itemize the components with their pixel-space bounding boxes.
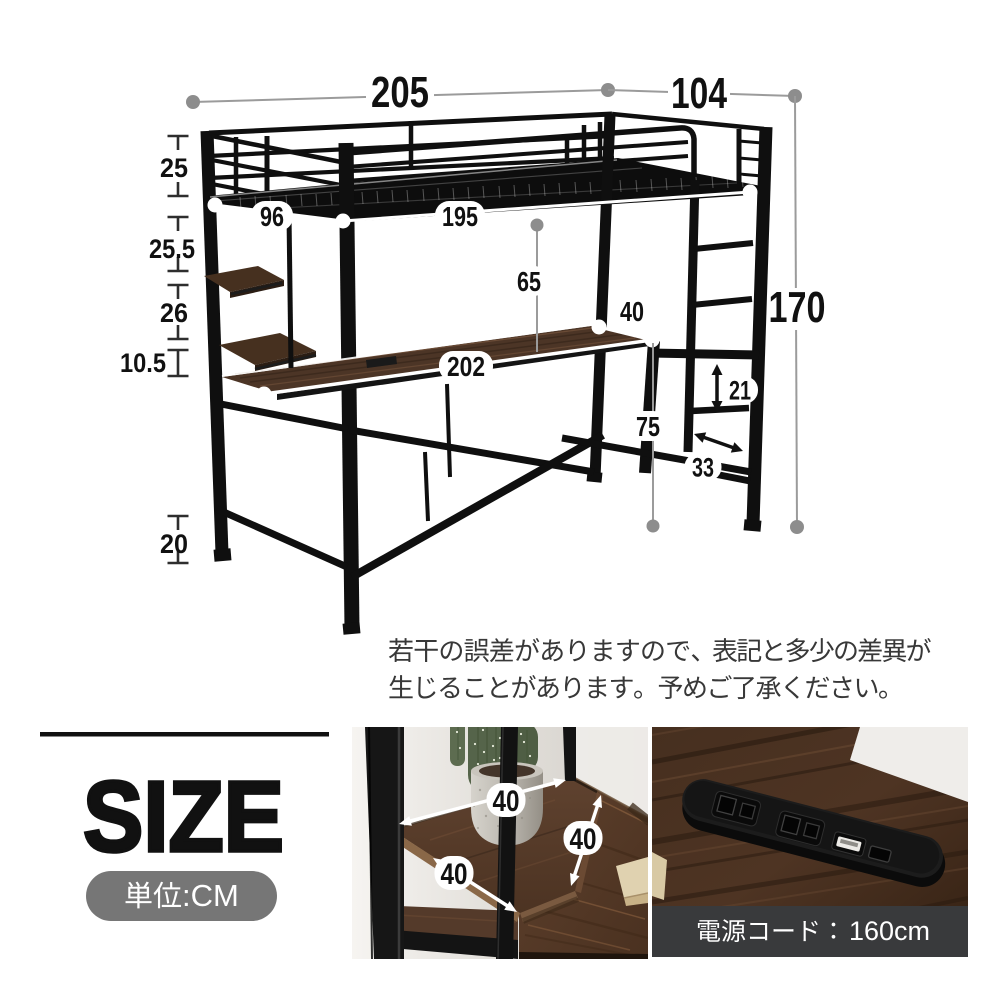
svg-text:21: 21	[729, 376, 751, 406]
svg-text:195: 195	[442, 201, 478, 232]
svg-text:10.5: 10.5	[120, 348, 166, 378]
svg-text:104: 104	[671, 69, 727, 118]
svg-text:40: 40	[441, 858, 468, 891]
svg-text:20: 20	[160, 529, 188, 559]
svg-text:205: 205	[371, 68, 429, 117]
svg-text:75: 75	[636, 411, 660, 442]
svg-text:40: 40	[570, 823, 597, 856]
svg-text:25: 25	[160, 153, 188, 183]
svg-text:170: 170	[769, 283, 826, 332]
svg-text:160cm: 160cm	[849, 916, 930, 946]
svg-text:SIZE: SIZE	[83, 761, 284, 873]
svg-text:40: 40	[620, 296, 644, 327]
svg-text:96: 96	[260, 201, 284, 232]
svg-text:65: 65	[517, 266, 541, 297]
svg-text:26: 26	[160, 298, 188, 328]
svg-text:25.5: 25.5	[149, 234, 195, 264]
svg-text:40: 40	[493, 785, 520, 818]
svg-text::CM: :CM	[182, 878, 239, 913]
svg-text:33: 33	[692, 453, 714, 483]
svg-text:202: 202	[447, 351, 485, 382]
